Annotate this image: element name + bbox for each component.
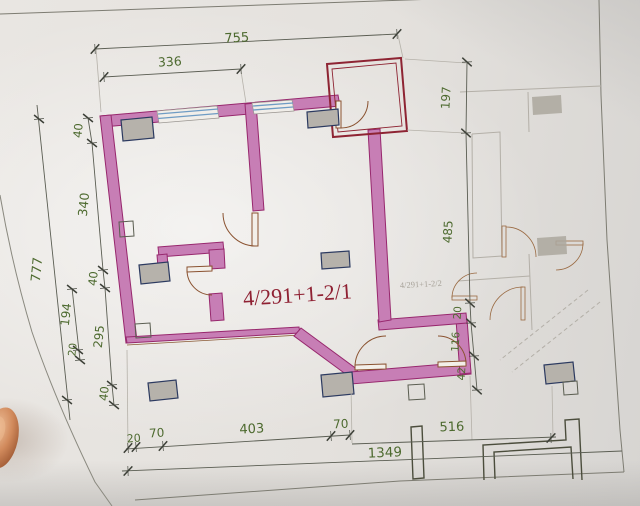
dim-70-right: 70 [333, 417, 349, 432]
column-hall [321, 372, 354, 397]
dim-left-40-bottom: 40 [96, 386, 111, 402]
adjacent-unit-label: 4/291+1-2/2 [400, 278, 443, 290]
hatched-pier-mid [537, 236, 567, 256]
dim-bottom-20: 20 [126, 432, 141, 446]
dim-right-20: 20 [452, 306, 465, 320]
wall-bathroom-south [126, 327, 300, 343]
column-living [321, 251, 350, 269]
dim-336: 336 [157, 53, 182, 69]
dim-340: 340 [75, 192, 92, 217]
dim-left-40-top: 40 [70, 123, 85, 139]
door-balcony [336, 101, 368, 128]
column-bathroom [139, 262, 170, 284]
door-bathroom [187, 266, 212, 295]
dim-70-left: 70 [149, 425, 165, 440]
unit-walls [100, 95, 471, 384]
dim-1349: 1349 [367, 444, 402, 461]
window-bedroom [157, 106, 219, 123]
doors [187, 101, 466, 370]
hatched-pier-top [532, 95, 562, 115]
dim-197: 197 [438, 86, 453, 110]
dim-42: 42 [456, 367, 469, 381]
door-bedroom [223, 213, 258, 246]
dim-left-40-mid: 40 [85, 271, 100, 287]
wall-left [100, 115, 137, 343]
door-entry-left [355, 336, 386, 370]
unit-label: 4/291+1-2/1 [242, 278, 352, 311]
dim-403: 403 [239, 421, 265, 437]
column-top-left [121, 117, 154, 141]
wall-bath-right-stub [209, 293, 224, 321]
finger [0, 404, 24, 472]
column-below-plan [148, 380, 178, 401]
dim-516: 516 [439, 420, 464, 436]
dim-755: 755 [224, 30, 250, 46]
wall-diagonal [294, 328, 358, 378]
dim-left-20: 20 [66, 342, 79, 357]
dim-295: 295 [91, 324, 107, 348]
dim-485: 485 [440, 220, 455, 244]
column-right-wing [544, 362, 575, 384]
stair-core-outline [411, 419, 582, 480]
wall-divider [245, 103, 264, 211]
shaft-right-wing [563, 381, 578, 395]
dim-194: 194 [58, 302, 74, 326]
floor-plan-drawing: 755 336 197 485 20 116 42 777 40 340 40 … [0, 0, 640, 506]
wall-living-right [368, 129, 391, 322]
dimension-texts: 755 336 197 485 20 116 42 777 40 340 40 … [29, 30, 469, 461]
pilaster-below-hall [408, 384, 425, 400]
dim-116: 116 [449, 331, 462, 352]
dim-777: 777 [29, 257, 47, 283]
adjacent-unit-walls [458, 86, 601, 372]
floor-plan-photo: 755 336 197 485 20 116 42 777 40 340 40 … [0, 0, 640, 506]
column-top-right [307, 109, 339, 128]
